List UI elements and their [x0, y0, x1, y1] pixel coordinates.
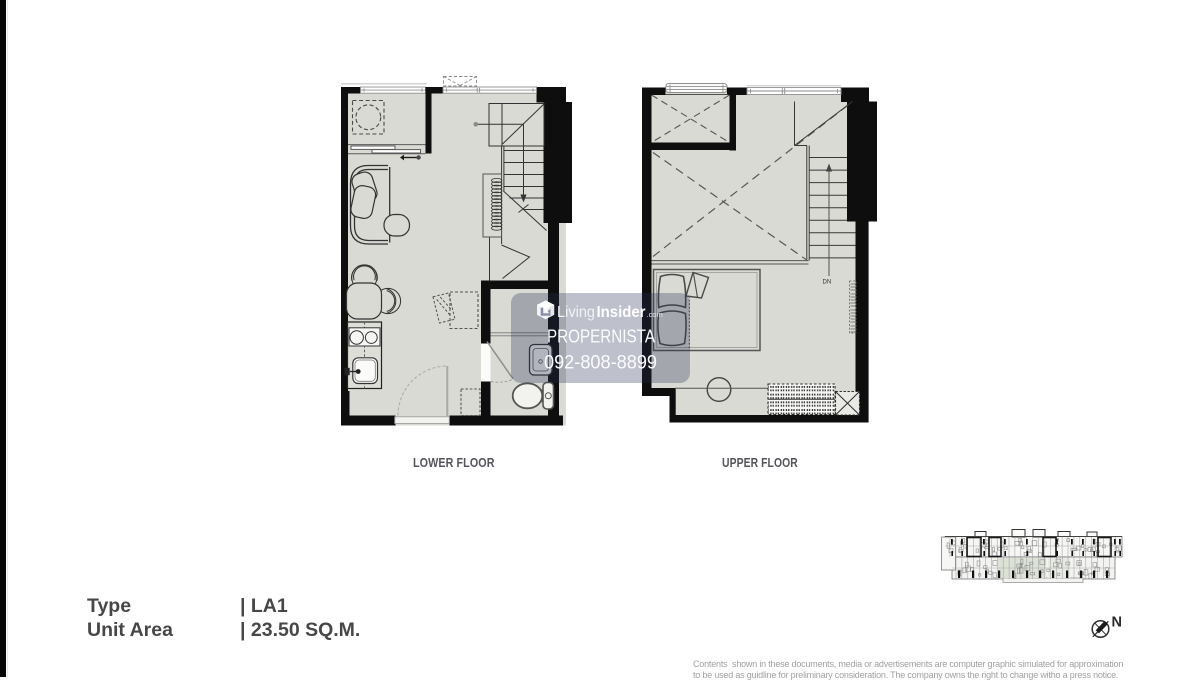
svg-text:Insider: Insider: [597, 304, 646, 321]
svg-text:.com: .com: [647, 310, 663, 319]
svg-text:092-808-8899: 092-808-8899: [544, 352, 657, 374]
svg-text:Living: Living: [557, 304, 595, 321]
svg-text:N: N: [1112, 615, 1122, 631]
svg-text:DN: DN: [823, 280, 832, 286]
svg-text:PROPERNISTA: PROPERNISTA: [547, 326, 656, 347]
